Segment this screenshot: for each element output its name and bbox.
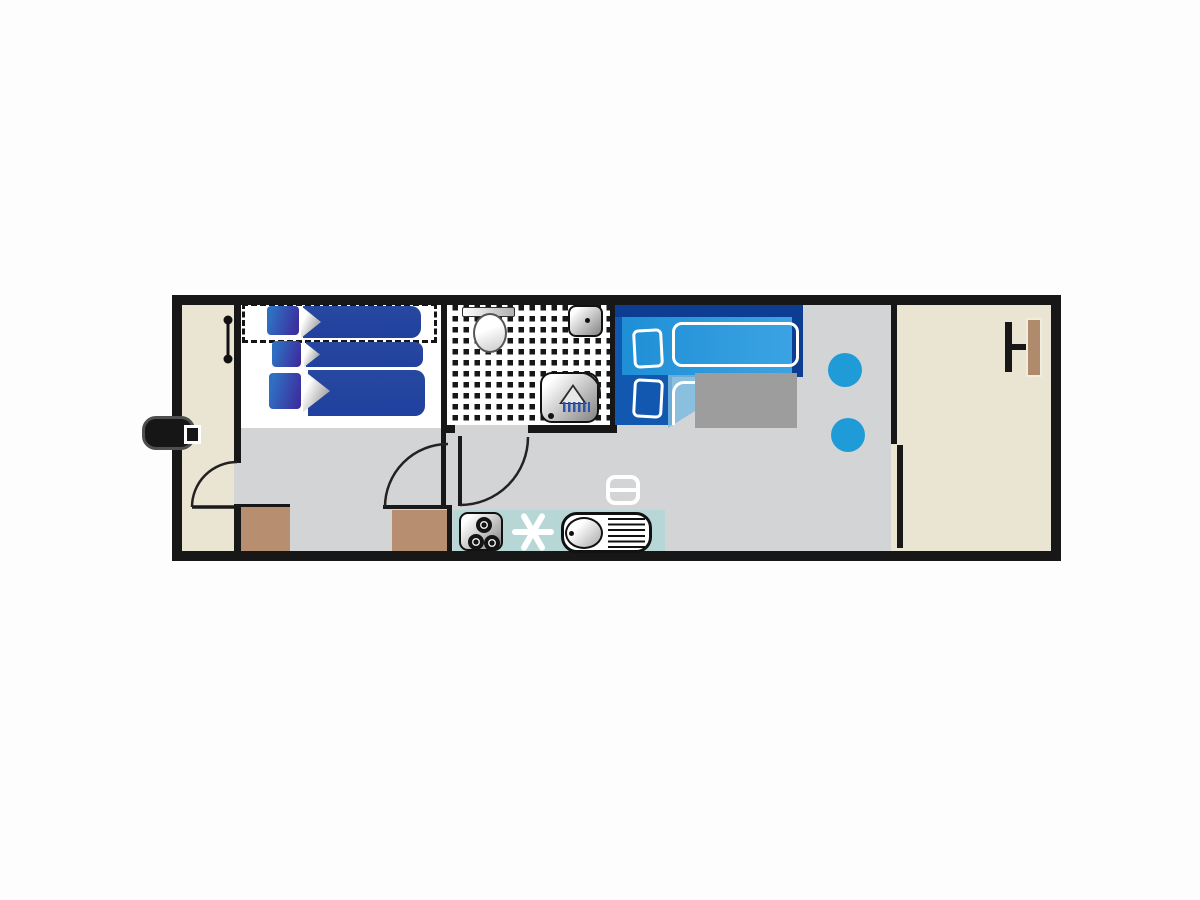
- stove-burner: [468, 534, 484, 550]
- shower-drain: [548, 413, 554, 419]
- bed-duvet-icon: [306, 342, 423, 367]
- wall-terrace-upper: [891, 305, 897, 444]
- toilet-bowl: [473, 313, 507, 353]
- heater-icon: [606, 475, 640, 505]
- wall-hall-lower: [234, 505, 241, 551]
- side-table: [695, 373, 797, 428]
- bed-pillow-icon: [632, 328, 664, 369]
- cabinet: [241, 507, 290, 551]
- bench-table-icon: [1005, 322, 1012, 372]
- wall-terrace-lower: [897, 445, 903, 548]
- cabinet: [392, 510, 447, 551]
- double-bed-head-strip: [615, 305, 803, 317]
- stove-burner: [484, 535, 500, 551]
- entrance-threshold: [184, 425, 201, 444]
- floorplan-canvas: [0, 0, 1200, 900]
- star-fan-icon: [512, 511, 554, 553]
- stool-icon: [831, 418, 865, 452]
- washbasin-drain: [585, 318, 590, 323]
- sink-drainer-lines: [608, 518, 645, 548]
- heater-icon-bar: [610, 488, 636, 492]
- bench-table-top: [1026, 318, 1042, 377]
- bed-pillow-icon: [269, 373, 301, 409]
- stool-icon: [828, 353, 862, 387]
- bed-pillow-icon: [272, 341, 301, 367]
- bench-table-connector: [1012, 344, 1026, 350]
- wall-stub-kitchen: [447, 505, 452, 551]
- bed-pillow-icon: [632, 378, 664, 419]
- wall-bath-bottom-r: [528, 425, 617, 433]
- wall-stub-corridor: [441, 433, 446, 506]
- stove-burner: [476, 517, 492, 533]
- wall-hall-upper: [234, 305, 241, 463]
- wall-bath-bottom-l: [441, 425, 455, 433]
- sink-drain: [569, 531, 574, 536]
- bed-pillow-icon: [267, 306, 299, 335]
- shower-water-lines: [563, 402, 590, 412]
- bed-duvet-icon: [672, 322, 799, 367]
